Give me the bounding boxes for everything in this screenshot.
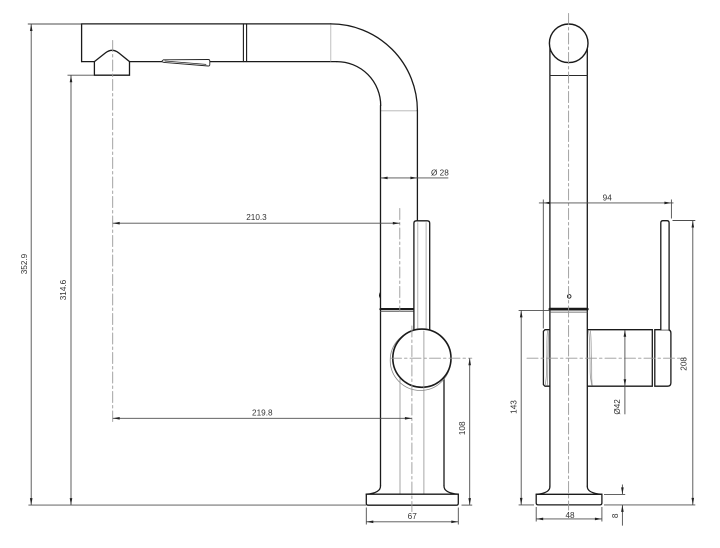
svg-text:314.6: 314.6 <box>59 279 68 300</box>
svg-text:210.3: 210.3 <box>246 213 267 222</box>
svg-text:67: 67 <box>408 512 418 521</box>
svg-text:352.9: 352.9 <box>20 253 29 274</box>
svg-text:108: 108 <box>458 421 467 435</box>
svg-text:Ø 28: Ø 28 <box>431 168 449 177</box>
svg-text:208: 208 <box>680 357 689 371</box>
svg-text:94: 94 <box>603 193 613 202</box>
svg-text:143: 143 <box>510 400 519 414</box>
svg-text:219.8: 219.8 <box>252 408 273 417</box>
svg-text:Ø42: Ø42 <box>613 399 622 415</box>
svg-text:8: 8 <box>611 513 620 518</box>
svg-text:48: 48 <box>565 511 575 520</box>
